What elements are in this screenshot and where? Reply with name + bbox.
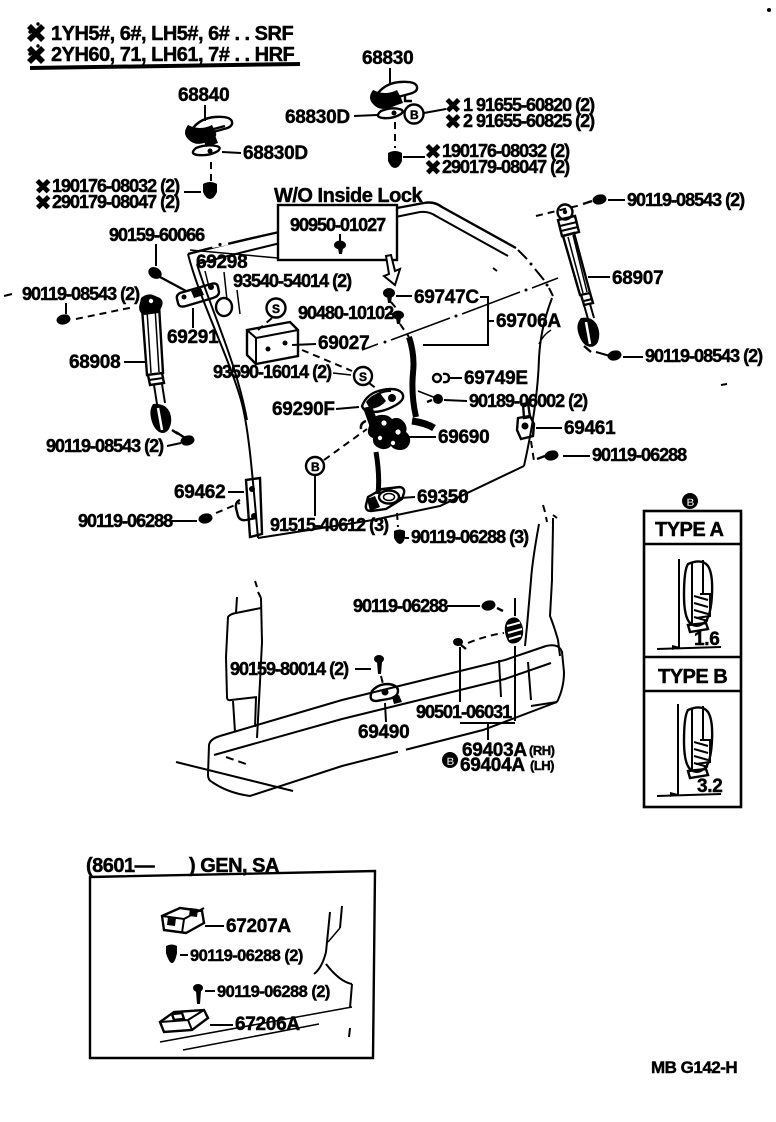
svg-text:TYPE B: TYPE B [658, 666, 727, 688]
svg-text:90119-08543 (2): 90119-08543 (2) [645, 346, 763, 366]
svg-text:67207A: 67207A [226, 916, 291, 937]
svg-text:68907: 68907 [612, 268, 663, 289]
svg-text:B: B [687, 497, 695, 509]
svg-text:69290F: 69290F [272, 399, 335, 420]
svg-text:93540-54014 (2): 93540-54014 (2) [233, 271, 352, 291]
svg-text:68830D: 68830D [243, 143, 308, 164]
svg-text:90119-08543 (2): 90119-08543 (2) [46, 436, 164, 456]
svg-text:68830D: 68830D [285, 107, 350, 128]
svg-text:90119-06288: 90119-06288 [353, 596, 448, 616]
svg-text:90480-10102: 90480-10102 [298, 303, 394, 323]
svg-text:69490: 69490 [358, 722, 409, 743]
svg-text:3.2: 3.2 [697, 776, 723, 797]
svg-text:TYPE A: TYPE A [655, 519, 724, 541]
svg-text:69291: 69291 [167, 327, 219, 348]
svg-text:69404A: 69404A [460, 755, 525, 776]
svg-text:W/O Inside Lock: W/O Inside Lock [274, 185, 423, 207]
svg-text:90119-06288 (3): 90119-06288 (3) [411, 527, 529, 547]
svg-text:90119-08543 (2): 90119-08543 (2) [627, 190, 745, 210]
svg-text:69747C: 69747C [414, 287, 479, 308]
svg-text:(8601—: (8601— [86, 855, 155, 877]
svg-text:67206A: 67206A [235, 1014, 300, 1035]
svg-text:68830: 68830 [362, 48, 413, 69]
svg-text:69706A: 69706A [496, 311, 561, 332]
svg-text:93590-16014 (2): 93590-16014 (2) [213, 362, 332, 382]
svg-text:69461: 69461 [564, 418, 616, 439]
svg-text:90119-06288 (2): 90119-06288 (2) [190, 947, 303, 965]
svg-text:S: S [272, 302, 280, 316]
svg-text:2 91655-60825 (2): 2 91655-60825 (2) [463, 111, 595, 131]
svg-text:290179-08047 (2): 290179-08047 (2) [52, 192, 180, 212]
svg-text:69027: 69027 [318, 333, 369, 354]
svg-text:90159-80014 (2): 90159-80014 (2) [230, 659, 349, 679]
svg-text:290179-08047 (2): 290179-08047 (2) [442, 157, 570, 177]
svg-text:MB G142-H: MB G142-H [651, 1058, 737, 1077]
svg-text:69350: 69350 [417, 487, 468, 508]
svg-text:90950-01027: 90950-01027 [290, 215, 386, 235]
svg-text:90119-06288 (2): 90119-06288 (2) [217, 983, 330, 1001]
svg-text:90501-06031: 90501-06031 [416, 702, 512, 722]
svg-text:69298: 69298 [196, 252, 247, 273]
svg-text:90119-06288: 90119-06288 [592, 445, 687, 465]
svg-text:1YH5#, 6#, LH5#, 6# . . SRF: 1YH5#, 6#, LH5#, 6# . . SRF [51, 23, 293, 45]
svg-text:90159-60066: 90159-60066 [109, 225, 205, 245]
svg-text:68840: 68840 [178, 85, 229, 106]
svg-text:B: B [410, 108, 419, 122]
svg-text:B: B [311, 460, 320, 474]
svg-text:69690: 69690 [438, 427, 489, 448]
svg-text:90119-06288: 90119-06288 [78, 511, 173, 531]
svg-text:(LH): (LH) [530, 758, 554, 773]
svg-text:1.6: 1.6 [694, 629, 720, 650]
svg-text:90119-08543 (2): 90119-08543 (2) [22, 284, 140, 304]
svg-text:(RH): (RH) [529, 743, 555, 758]
svg-text:91515-40612 (3): 91515-40612 (3) [270, 515, 389, 535]
svg-text:69749E: 69749E [464, 368, 528, 389]
svg-text:68908: 68908 [69, 352, 120, 373]
svg-text:S: S [359, 370, 367, 384]
svg-text:B: B [447, 756, 455, 768]
svg-text:69462: 69462 [174, 482, 225, 503]
